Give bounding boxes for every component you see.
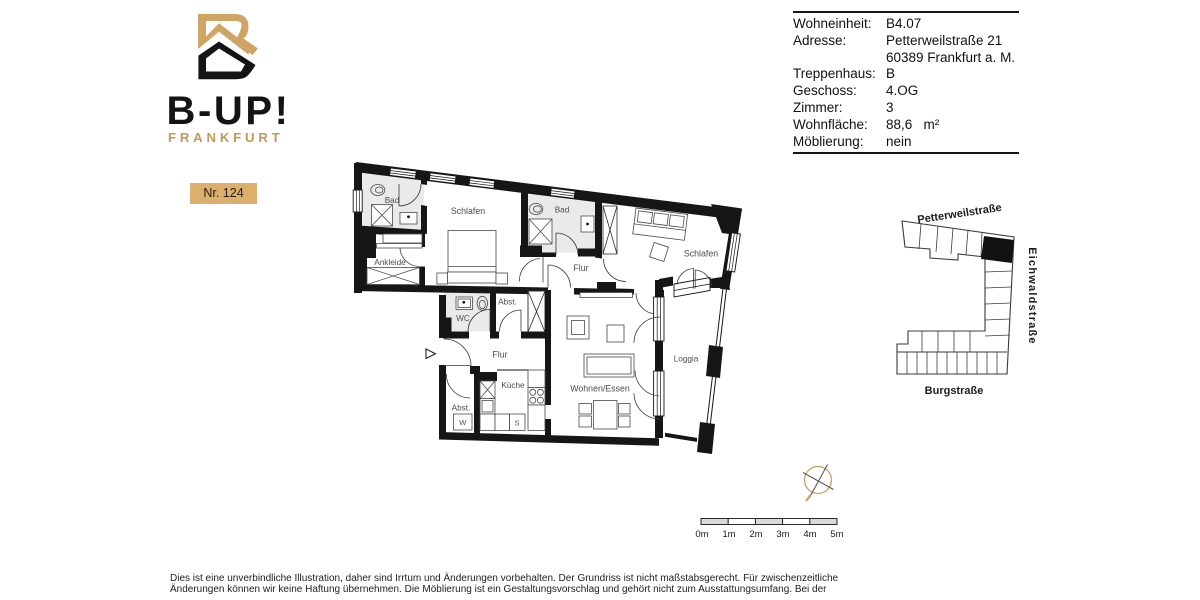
svg-text:Abst.: Abst. (498, 298, 517, 307)
svg-text:S: S (514, 419, 519, 428)
svg-text:WC: WC (456, 314, 470, 323)
svg-text:2m: 2m (749, 529, 762, 540)
svg-text:Burgstraße: Burgstraße (925, 385, 984, 397)
svg-text:Loggia: Loggia (674, 355, 699, 364)
svg-text:0m: 0m (695, 529, 708, 540)
svg-text:4m: 4m (803, 529, 816, 540)
svg-text:Flur: Flur (492, 350, 507, 360)
svg-text:W: W (459, 418, 467, 427)
svg-text:Ankleide: Ankleide (374, 258, 406, 267)
svg-text:Küche: Küche (501, 381, 525, 390)
svg-text:Wohnen/Essen: Wohnen/Essen (570, 384, 630, 394)
svg-text:3m: 3m (776, 529, 789, 540)
svg-text:Bad: Bad (385, 196, 400, 205)
svg-text:Schlafen: Schlafen (684, 249, 718, 259)
svg-text:5m: 5m (830, 529, 843, 540)
svg-text:Petterweilstraße: Petterweilstraße (917, 202, 1003, 226)
svg-text:Flur: Flur (573, 263, 588, 273)
svg-text:1m: 1m (722, 529, 735, 540)
svg-text:Bad: Bad (555, 206, 570, 215)
svg-text:Abst.: Abst. (452, 404, 471, 413)
svg-text:Eichwaldstraße: Eichwaldstraße (1026, 247, 1038, 345)
svg-text:Schlafen: Schlafen (451, 206, 485, 216)
